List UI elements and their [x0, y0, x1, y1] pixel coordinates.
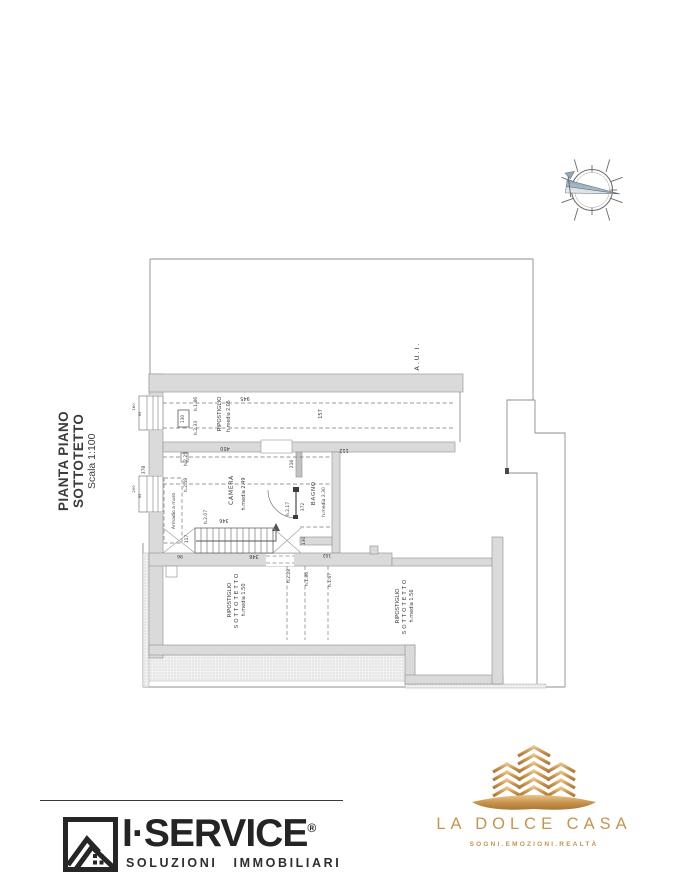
- page: { "title_block": { "title": "PIANTA PIAN…: [0, 0, 682, 891]
- dim-945: 945: [240, 395, 250, 401]
- room-height-ripostiglio: h.media 2.05: [226, 400, 232, 432]
- room-height-sottotetto-left: h.media 1.50: [241, 583, 247, 616]
- room-height-bagno: h.media 2.30: [321, 487, 327, 517]
- dim-130-stairs: 130: [301, 537, 307, 546]
- iservice-logo-icon: [62, 816, 119, 873]
- dim-96: 96: [177, 553, 183, 559]
- dim-102: 102: [323, 552, 332, 558]
- window-1: [139, 395, 164, 431]
- dim-157: 157: [318, 409, 324, 419]
- dim-window1-sill: 95: [137, 411, 142, 416]
- stair-direction-arrow: [272, 523, 280, 531]
- area-label-aui: A.U.I.: [413, 341, 421, 370]
- dim-346-stairs: 346: [249, 553, 259, 559]
- window-2: [139, 475, 164, 513]
- bagno-door: [268, 487, 299, 519]
- room-height-sottotetto-right: h.media 1.56: [409, 589, 415, 622]
- dim-346-top: 346: [219, 517, 229, 523]
- dim-window2-sill: 95: [137, 493, 142, 498]
- room-height-camera: h.media 2.49: [241, 477, 247, 510]
- dim-450: 450: [220, 445, 230, 451]
- height-note-h217: h.2.17: [285, 502, 291, 516]
- footer-divider: [40, 800, 343, 801]
- room-label-sottotetto-right-2: SOTTOTETTO: [402, 578, 408, 635]
- room-label-bagno: BAGNO: [311, 481, 317, 505]
- dim-window2-width: 200: [131, 485, 136, 493]
- armadio-label: Armadio a muro: [171, 493, 177, 529]
- dim-117: 117: [184, 535, 190, 544]
- registered-mark: ®: [307, 821, 316, 835]
- height-note-h225: h.2.25: [183, 452, 189, 466]
- dolcecasa-brand: LA DOLCE CASA: [404, 815, 664, 834]
- dim-130-box: 130: [180, 415, 185, 423]
- room-label-ripostiglio: RIPOSTIGLIO: [217, 396, 223, 432]
- height-note-h167: h.1.67: [327, 573, 333, 587]
- iservice-brand: I·SERVICE®: [122, 812, 316, 856]
- dolcecasa-tagline: SOGNI.EMOZIONI.REALTÀ: [404, 841, 664, 848]
- compass-icon: [561, 159, 622, 220]
- dim-window1-width: 160: [131, 403, 136, 411]
- wall-notch: [166, 566, 177, 577]
- door-opening: [261, 440, 292, 453]
- dim-378: 378: [141, 466, 147, 475]
- dolcecasa-logo-icon: [464, 742, 604, 814]
- height-note-h186-rip: h.1.86: [193, 397, 199, 411]
- height-note-h233: h.2.33: [193, 421, 199, 435]
- stairs: [163, 523, 301, 553]
- height-note-h228: h.2.28: [286, 569, 292, 583]
- room-label-sottotetto-left-2: SOTTOTETTO: [234, 572, 240, 629]
- dim-372: 372: [300, 503, 306, 512]
- dim-112: 112: [339, 447, 349, 453]
- dim-tick: [505, 468, 509, 474]
- height-note-h186-sott: h.1.86: [304, 572, 310, 586]
- iservice-tagline: SOLUZIONI IMMOBILIARI: [126, 856, 341, 870]
- iservice-brand-text: I·SERVICE: [122, 812, 307, 855]
- height-note-h258: h.2.58: [183, 478, 189, 492]
- room-label-camera: CAMERA: [228, 475, 235, 505]
- height-note-h207: h.2.07: [203, 510, 209, 524]
- room-label-sottotetto-left-1: RIPOSTIGLIO: [227, 582, 233, 618]
- dim-216: 216: [289, 460, 295, 469]
- room-label-sottotetto-right-1: RIPOSTIGLIO: [395, 588, 401, 624]
- terrace-band: [143, 553, 546, 688]
